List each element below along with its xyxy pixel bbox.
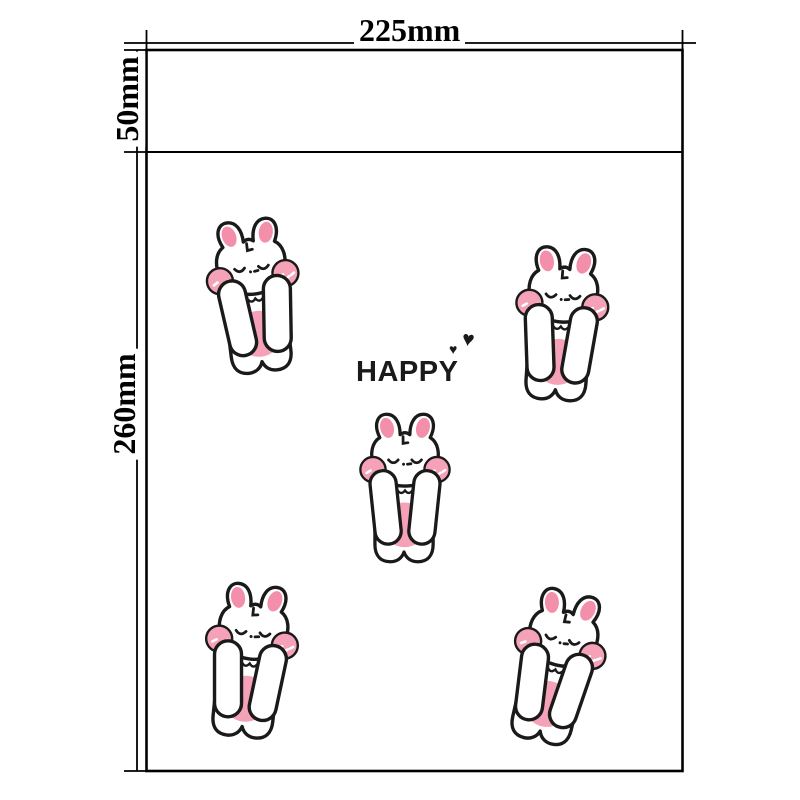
heart-icon-small: ♥ <box>449 342 457 356</box>
width-dimension-label: 225mm <box>354 14 465 48</box>
bag-dimension-diagram: 225mm 50mm 260mm HAPPY ♥ ♥ <box>0 0 800 800</box>
bag-print-happy-text: HAPPY <box>356 356 458 389</box>
flap-height-dimension-label: 50mm <box>111 51 145 146</box>
body-height-dimension-label: 260mm <box>108 348 142 459</box>
